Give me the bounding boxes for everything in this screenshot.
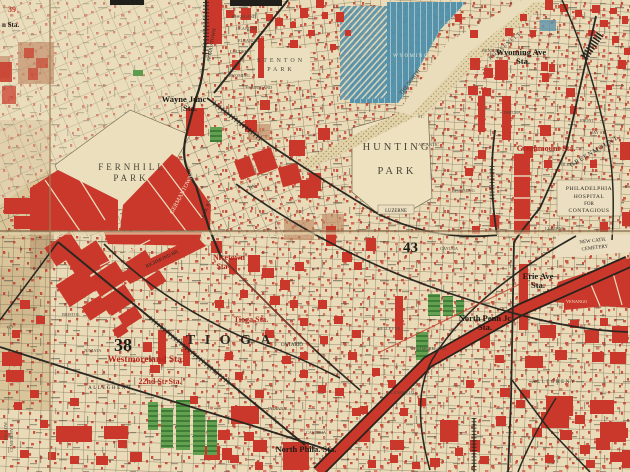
svg-text:Westmoreland Sta.: Westmoreland Sta. xyxy=(108,355,185,365)
svg-text:ALLEGHENY: ALLEGHENY xyxy=(532,380,576,385)
svg-text:TILES: TILES xyxy=(560,162,572,167)
svg-text:ONTARIO: ONTARIO xyxy=(281,343,303,348)
svg-text:PHILADELPHIA: PHILADELPHIA xyxy=(566,186,612,192)
svg-text:Sta.: Sta. xyxy=(183,103,197,113)
svg-text:ALLEGHENY: ALLEGHENY xyxy=(88,386,132,391)
svg-text:THELMA: THELMA xyxy=(503,110,522,115)
svg-text:Nicetown: Nicetown xyxy=(213,253,246,262)
svg-text:PARK: PARK xyxy=(267,67,294,73)
svg-text:HOSPITAL: HOSPITAL xyxy=(574,194,605,200)
svg-text:CLEARFIELD: CLEARFIELD xyxy=(388,390,414,395)
svg-text:Sta: Sta xyxy=(216,262,227,271)
svg-text:FERNHILL: FERNHILL xyxy=(98,162,166,172)
svg-text:COURTLAND: COURTLAND xyxy=(246,85,272,90)
svg-text:VENANGO: VENANGO xyxy=(566,299,587,304)
svg-text:PARK: PARK xyxy=(377,166,416,177)
svg-text:43: 43 xyxy=(403,240,418,256)
svg-text:ATLANTIC: ATLANTIC xyxy=(418,142,439,147)
svg-text:22nd St. Sta.: 22nd St. Sta. xyxy=(138,377,181,386)
svg-text:PARK: PARK xyxy=(113,173,148,183)
svg-text:LUZERNE: LUZERNE xyxy=(385,209,407,214)
svg-text:WYOMING: WYOMING xyxy=(228,73,250,78)
svg-text:Sta.: Sta. xyxy=(516,56,530,66)
svg-text:BRISTOL: BRISTOL xyxy=(62,312,80,317)
svg-text:LOUDEN: LOUDEN xyxy=(230,49,248,54)
svg-text:Tioga Sta.: Tioga Sta. xyxy=(234,315,269,324)
svg-text:BENTON: BENTON xyxy=(482,48,499,53)
svg-text:INDIANA: INDIANA xyxy=(268,406,287,411)
svg-text:DAY ST.: DAY ST. xyxy=(590,130,606,135)
svg-text:n Sta.: n Sta. xyxy=(2,21,19,29)
svg-text:CONTAGIOUS: CONTAGIOUS xyxy=(569,208,610,214)
svg-text:38: 38 xyxy=(114,335,132,355)
svg-text:JUNIATA: JUNIATA xyxy=(84,348,102,353)
svg-text:CAMBRIA: CAMBRIA xyxy=(306,430,327,435)
svg-text:LYCOMING: LYCOMING xyxy=(452,188,475,193)
svg-text:CEMETERY: CEMETERY xyxy=(9,427,14,452)
svg-text:ROCKLAND: ROCKLAND xyxy=(232,14,256,19)
svg-text:GLANIFER: GLANIFER xyxy=(236,26,257,31)
svg-text:Sta.: Sta. xyxy=(531,280,545,290)
svg-text:WESTMORELAND: WESTMORELAND xyxy=(410,346,446,351)
svg-text:STENTON: STENTON xyxy=(257,58,305,64)
svg-text:TIOGA: TIOGA xyxy=(186,333,280,348)
svg-text:CAYUGA: CAYUGA xyxy=(440,246,459,251)
svg-text:BELLEVUE: BELLEVUE xyxy=(378,326,401,331)
svg-text:ST.: ST. xyxy=(418,114,424,119)
svg-text:WYOMING: WYOMING xyxy=(393,54,429,59)
svg-text:North Phila. Sta.: North Phila. Sta. xyxy=(276,444,337,454)
svg-text:FELLOW: FELLOW xyxy=(3,421,8,440)
svg-text:39: 39 xyxy=(8,5,16,14)
svg-text:Sta.: Sta. xyxy=(478,322,492,332)
svg-text:LUZERNE: LUZERNE xyxy=(545,226,565,231)
svg-text:ELEANOR: ELEANOR xyxy=(238,38,258,43)
svg-text:FRONT: FRONT xyxy=(580,118,594,123)
svg-text:Greenmount Sta.: Greenmount Sta. xyxy=(517,144,576,153)
svg-text:FOR: FOR xyxy=(584,202,594,207)
